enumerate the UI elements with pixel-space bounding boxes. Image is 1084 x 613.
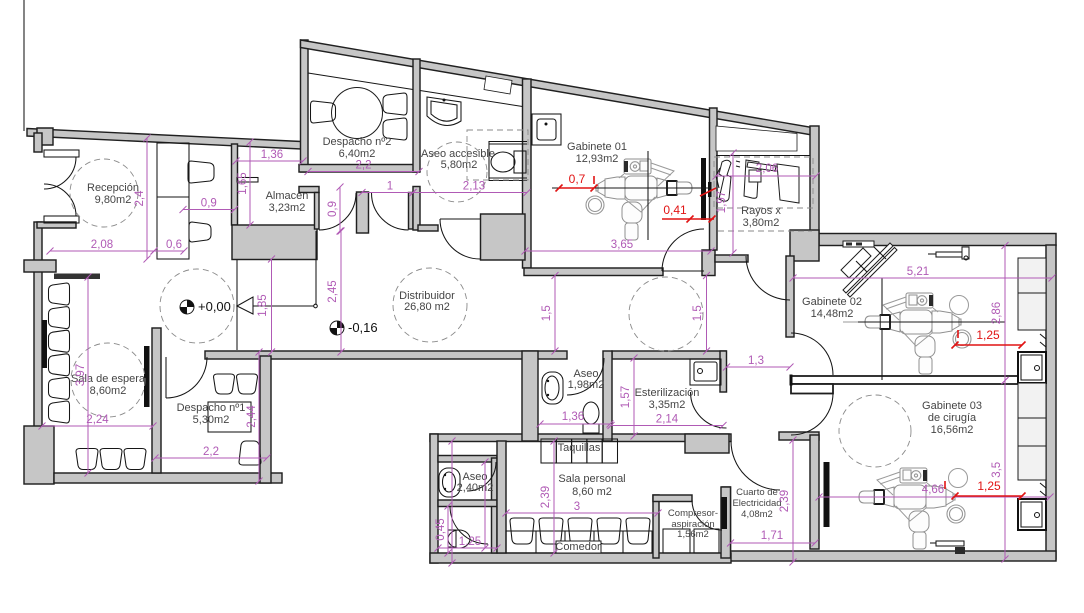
svg-text:6,40m2: 6,40m2 — [339, 148, 376, 160]
svg-text:2,2: 2,2 — [356, 160, 372, 172]
svg-text:Electricidad: Electricidad — [732, 498, 781, 509]
svg-text:12,93m2: 12,93m2 — [576, 153, 619, 165]
svg-text:Comedor: Comedor — [555, 541, 601, 553]
svg-text:4,66: 4,66 — [922, 484, 944, 496]
svg-text:Almacen: Almacen — [266, 190, 309, 202]
svg-text:2,2: 2,2 — [203, 446, 219, 458]
svg-text:3,23m2: 3,23m2 — [269, 202, 306, 214]
svg-text:14,48m2: 14,48m2 — [811, 308, 854, 320]
svg-text:2,45: 2,45 — [327, 280, 339, 302]
svg-text:2,44: 2,44 — [246, 405, 258, 428]
svg-text:2,39: 2,39 — [540, 486, 552, 508]
svg-text:Despacho nº2: Despacho nº2 — [323, 136, 392, 148]
svg-text:Rayos x: Rayos x — [741, 205, 781, 217]
svg-text:+0,00: +0,00 — [198, 299, 231, 314]
svg-text:3,5: 3,5 — [991, 462, 1003, 478]
svg-text:1,36: 1,36 — [261, 149, 283, 161]
svg-text:5,21: 5,21 — [907, 266, 929, 278]
svg-text:Sala personal: Sala personal — [558, 473, 625, 485]
svg-text:4,08m2: 4,08m2 — [741, 509, 773, 520]
svg-text:0,9: 0,9 — [327, 201, 339, 217]
svg-text:26,80 m2: 26,80 m2 — [404, 301, 450, 313]
svg-text:1,65: 1,65 — [237, 172, 249, 194]
svg-text:-0,16: -0,16 — [348, 320, 378, 335]
svg-text:0,41: 0,41 — [663, 203, 687, 217]
svg-text:2,39: 2,39 — [779, 490, 791, 512]
svg-text:2,06: 2,06 — [756, 163, 778, 175]
svg-text:2,13: 2,13 — [463, 181, 485, 193]
svg-text:2,24: 2,24 — [86, 414, 109, 426]
svg-text:Gabinete 02: Gabinete 02 — [802, 296, 862, 308]
svg-text:1,5: 1,5 — [692, 305, 704, 321]
svg-text:8,60m2: 8,60m2 — [90, 385, 127, 397]
svg-text:1,71: 1,71 — [761, 530, 783, 542]
svg-text:3,97: 3,97 — [75, 364, 87, 386]
svg-text:Gabinete 03: Gabinete 03 — [922, 400, 982, 412]
svg-text:3: 3 — [574, 501, 580, 513]
svg-text:1,5: 1,5 — [541, 305, 553, 321]
svg-text:2,4: 2,4 — [134, 190, 146, 207]
svg-text:1,36: 1,36 — [562, 411, 584, 423]
svg-text:Compresor-: Compresor- — [668, 508, 718, 519]
svg-text:0,7: 0,7 — [569, 172, 586, 186]
svg-text:2,08: 2,08 — [91, 239, 113, 251]
svg-text:2,14: 2,14 — [656, 414, 679, 426]
svg-text:Taquillas: Taquillas — [558, 442, 601, 454]
svg-text:2,40m2: 2,40m2 — [457, 482, 494, 494]
svg-text:2,86: 2,86 — [991, 302, 1003, 324]
svg-text:0,9: 0,9 — [201, 198, 217, 210]
svg-text:1,25: 1,25 — [976, 328, 1000, 342]
svg-text:1,25: 1,25 — [977, 479, 1001, 493]
svg-text:1,98m2: 1,98m2 — [568, 379, 605, 391]
svg-text:1,57: 1,57 — [620, 386, 632, 408]
svg-text:9,80m2: 9,80m2 — [95, 194, 132, 206]
svg-text:3,35m2: 3,35m2 — [649, 399, 686, 411]
svg-text:Esterilización: Esterilización — [635, 387, 700, 399]
svg-text:0,45: 0,45 — [435, 518, 447, 540]
svg-text:Cuarto de: Cuarto de — [736, 487, 778, 498]
svg-text:1,97: 1,97 — [716, 191, 728, 213]
svg-text:5,80m2: 5,80m2 — [441, 159, 478, 171]
svg-text:Despacho nº1: Despacho nº1 — [177, 402, 246, 414]
svg-text:16,56m2: 16,56m2 — [931, 424, 974, 436]
svg-text:de cirugía: de cirugía — [928, 412, 977, 424]
svg-text:3,65: 3,65 — [611, 239, 633, 251]
svg-text:3,80m2: 3,80m2 — [743, 217, 780, 229]
svg-text:0,6: 0,6 — [166, 239, 182, 251]
svg-text:5,30m2: 5,30m2 — [193, 414, 230, 426]
svg-text:1,56m2: 1,56m2 — [677, 529, 709, 540]
svg-text:Recepción: Recepción — [87, 182, 139, 194]
svg-text:Gabinete 01: Gabinete 01 — [567, 141, 627, 153]
svg-text:1,3: 1,3 — [748, 355, 764, 367]
svg-text:1: 1 — [387, 181, 393, 193]
svg-text:1,85: 1,85 — [257, 294, 269, 316]
svg-text:1,25: 1,25 — [459, 536, 481, 548]
svg-text:8,60 m2: 8,60 m2 — [572, 486, 612, 498]
